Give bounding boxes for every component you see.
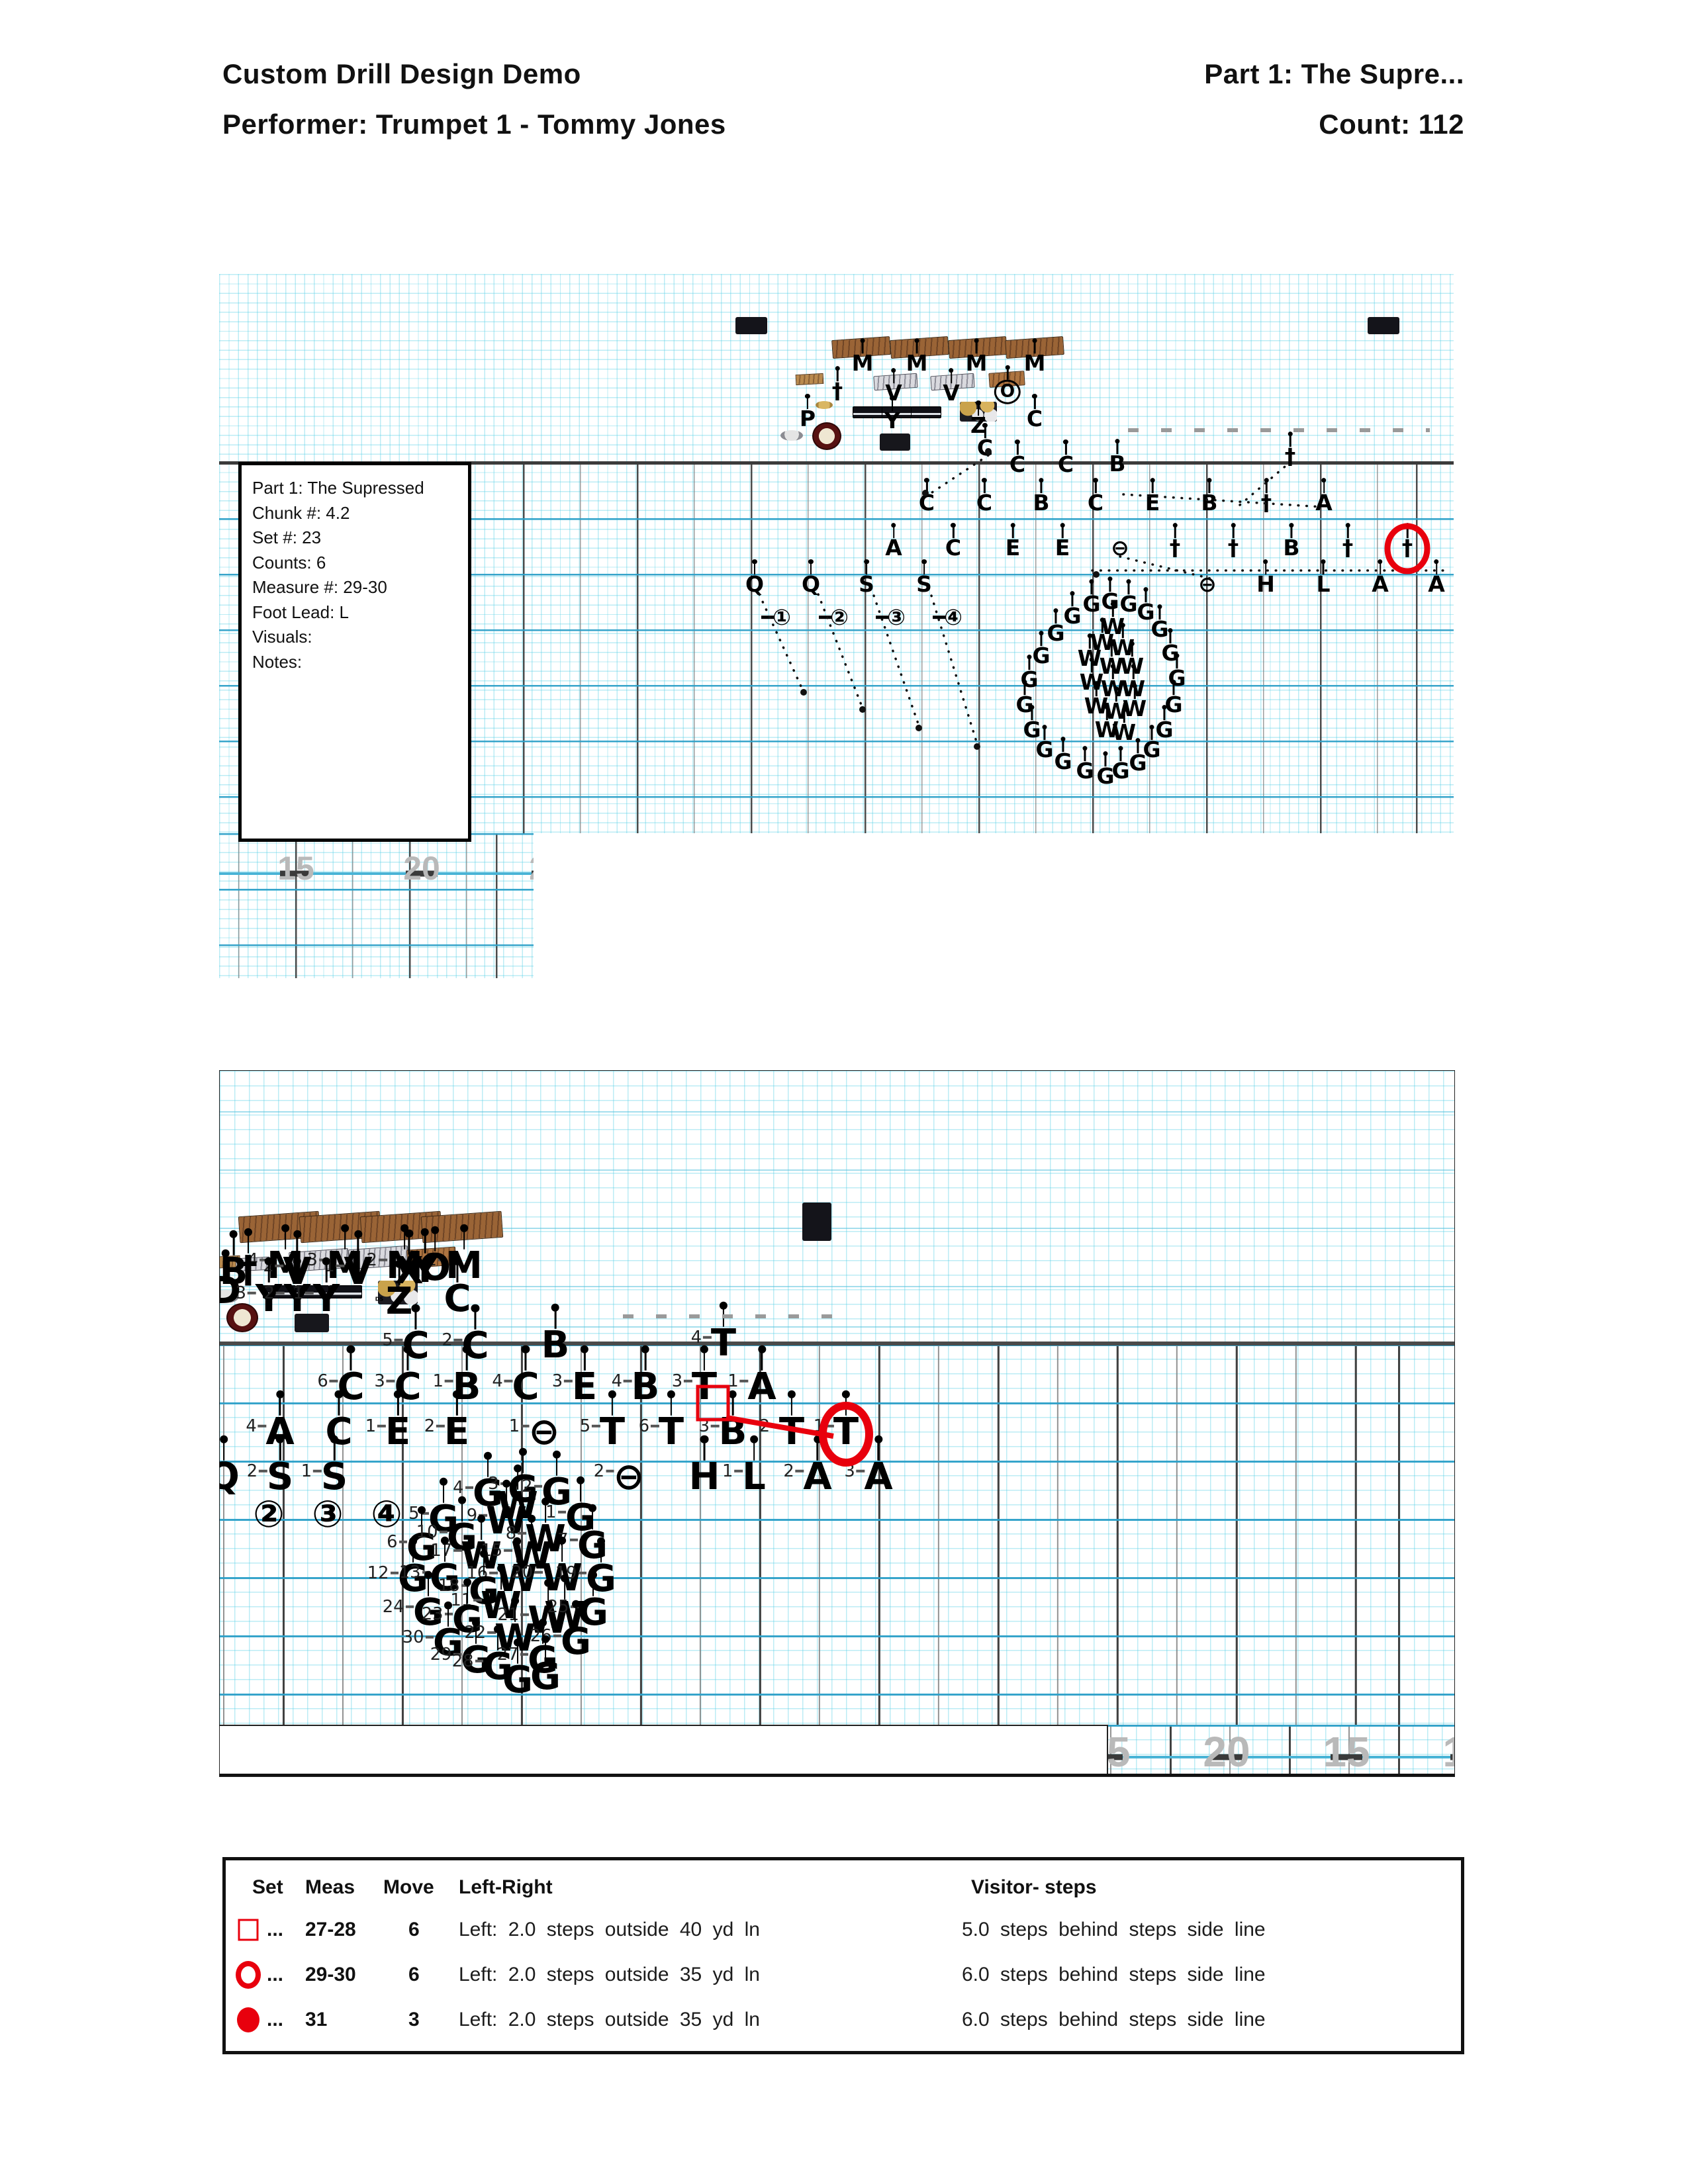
cymbal-icon (816, 401, 833, 409)
info-footlead: Foot Lead: L (252, 600, 468, 625)
performer-marker: 6T (659, 1414, 684, 1451)
performer-label: Performer: Trumpet 1 - Tommy Jones (222, 109, 726, 140)
performer-marker: A (1315, 492, 1333, 514)
performer-marker: G (1119, 593, 1137, 615)
front-back-coordinate: 5.0 steps behind steps side line (962, 1919, 1266, 1941)
performer-marker: G (1101, 590, 1119, 612)
marker-layer: 4M3M2M1MB†D2V1VXYO3Y2Y1YDSZC5C2CB4T6C3C1… (220, 1071, 1454, 1776)
performer-marker: C (976, 492, 992, 514)
info-chunk: Chunk #: 4.2 (252, 501, 468, 526)
performer-marker: V (885, 382, 902, 404)
performer-marker: M (852, 352, 874, 374)
performer-marker: 26G (561, 1623, 591, 1661)
performer-marker: G (1063, 605, 1081, 627)
performer-marker: H (1256, 573, 1275, 595)
col-header-lr: Left-Right (459, 1876, 553, 1899)
col-header-meas: Meas (305, 1876, 355, 1899)
col-header-visitor: Visitor- steps (971, 1876, 1097, 1899)
performer-marker: 3T (692, 1369, 717, 1406)
performer-marker: 4C (512, 1369, 539, 1406)
performer-marker: G (1082, 593, 1100, 615)
performer-marker: C (1009, 453, 1025, 475)
page-title: Custom Drill Design Demo (222, 58, 581, 90)
performer-marker: ③ (312, 1496, 343, 1533)
performer-marker: ④ (944, 606, 962, 628)
performer-marker: ① (773, 606, 791, 628)
front-back-coordinate: 6.0 steps behind steps side line (962, 2009, 1266, 2031)
performer-marker: † (1342, 537, 1354, 559)
performer-marker: ⊖ (1198, 573, 1217, 595)
performer-marker: C (1027, 408, 1043, 430)
front-back-coordinate: 6.0 steps behind steps side line (962, 1964, 1266, 1986)
performer-marker: B (1283, 537, 1299, 559)
timpani-icon (780, 430, 803, 441)
performer-marker: B (1109, 453, 1125, 475)
performer-marker: † (1261, 492, 1272, 514)
field-chart-zoom: 25201510 4M3M2M1MB†D2V1VXYO3Y2Y1YDSZC5C2… (219, 1070, 1455, 1777)
performer-marker: Z (386, 1283, 413, 1320)
performer-marker: P (800, 408, 816, 430)
performer-marker: Y (884, 410, 900, 432)
info-notes: Notes: (252, 650, 468, 675)
performer-marker: G (1150, 618, 1168, 640)
performer-marker: ② (830, 606, 849, 628)
performer-marker: C (1088, 492, 1103, 514)
performer-marker: G (1076, 760, 1094, 782)
performer-marker: C (919, 492, 935, 514)
performer-marker: G (1168, 667, 1186, 689)
performer-marker: 2A (803, 1459, 831, 1496)
info-set: Set #: 23 (252, 525, 468, 551)
info-counts: Counts: 6 (252, 551, 468, 576)
performer-marker: E (1145, 492, 1160, 514)
info-part: Part 1: The Supressed (252, 476, 468, 501)
performer-marker: L (1316, 573, 1330, 595)
performer-marker: 3E (572, 1369, 597, 1406)
performer-marker: † (1402, 537, 1413, 559)
performer-marker: Q (219, 1459, 240, 1496)
performer-marker: G (1035, 739, 1053, 760)
part-label: Part 1: The Supre... (1204, 58, 1464, 90)
performer-marker: B (1201, 492, 1217, 514)
left-right-coordinate: Left: 2.0 steps outside 35 yd ln (459, 2009, 760, 2031)
performer-marker: ④ (371, 1496, 402, 1533)
performer-marker: 1A (747, 1369, 776, 1406)
performer-marker: ② (253, 1496, 284, 1533)
keyboard-icon (853, 406, 883, 418)
performer-marker: ⊖ (1111, 537, 1129, 559)
performer-marker: W (1080, 671, 1103, 693)
performer-marker: A (1428, 573, 1445, 595)
performer-marker: Q (745, 573, 764, 595)
performer-marker: 1E (385, 1414, 410, 1451)
performer-marker: ③ (887, 606, 906, 628)
keyboard-icon (911, 406, 941, 418)
set-cell: ... (267, 1964, 283, 1986)
bassdrum-icon (812, 422, 841, 450)
performer-marker: C (977, 437, 993, 459)
drill-coordinate-table: Set Meas Move Left-Right Visitor- steps … (222, 1857, 1464, 2054)
performer-marker: A (885, 537, 902, 559)
performer-marker: M (966, 352, 988, 374)
performer-marker: Q (802, 573, 820, 595)
performer-marker: 2⊖ (614, 1459, 645, 1496)
performer-marker: G (1032, 645, 1050, 666)
set-info-box: Part 1: The Supressed Chunk #: 4.2 Set #… (238, 462, 471, 842)
performer-marker: 2T (779, 1414, 804, 1451)
performer-marker: 1S (321, 1459, 348, 1496)
performer-marker: S (916, 573, 932, 595)
performer-marker: 1V (344, 1253, 372, 1291)
measure-cell: 29-30 (305, 1964, 356, 1986)
performer-marker: S (859, 573, 874, 595)
performer-marker: A (1372, 573, 1389, 595)
performer-marker: 1L (742, 1459, 766, 1496)
measure-cell: 27-28 (305, 1919, 356, 1941)
info-visuals: Visuals: (252, 625, 468, 650)
xylo-icon (796, 373, 824, 385)
speaker-icon (735, 317, 767, 334)
performer-marker: C (945, 537, 961, 559)
performer-marker: G (1129, 752, 1147, 774)
performer-marker: † (1170, 537, 1181, 559)
col-header-set: Set (252, 1876, 283, 1899)
col-header-move: Move (383, 1876, 434, 1899)
move-counts-cell: 3 (408, 2009, 420, 2031)
performer-marker: 1Y (313, 1281, 340, 1318)
performer-marker: 1⊖ (529, 1414, 560, 1451)
performer-marker: † (1228, 537, 1239, 559)
performer-marker: 3B (719, 1414, 747, 1451)
performer-marker: H (689, 1459, 720, 1496)
performer-marker: 1T (833, 1414, 859, 1451)
performer-marker: G (502, 1662, 533, 1699)
performer-marker: C (325, 1414, 352, 1451)
left-right-coordinate: Left: 2.0 steps outside 35 yd ln (459, 1964, 760, 1986)
info-measure: Measure #: 29-30 (252, 575, 468, 600)
performer-marker: B (541, 1327, 570, 1364)
gong-icon (880, 433, 910, 451)
performer-marker: M (906, 352, 928, 374)
performer-marker: 5T (600, 1414, 625, 1451)
performer-marker: M (1024, 352, 1046, 374)
performer-marker: C (1058, 453, 1074, 475)
set-cell: ... (267, 1919, 283, 1941)
square-outline-icon (238, 1919, 259, 1941)
performer-marker: 4T (711, 1325, 736, 1362)
performer-marker: G (1047, 622, 1064, 644)
performer-marker: 3A (864, 1459, 892, 1496)
performer-marker: C (444, 1281, 471, 1318)
performer-marker: 6C (337, 1369, 364, 1406)
performer-marker: E (1006, 537, 1021, 559)
performer-marker: G (530, 1659, 561, 1696)
circle-filled-icon (237, 2007, 259, 2032)
circle-outline-icon (236, 1961, 261, 1989)
performer-marker: G (1111, 760, 1129, 782)
measure-cell: 31 (305, 2009, 327, 2031)
speaker-icon (802, 1203, 831, 1241)
performer-marker: G (1164, 694, 1182, 715)
speaker-icon (1368, 317, 1399, 334)
performer-marker: O (994, 379, 1021, 404)
performer-marker: G (1054, 751, 1072, 772)
performer-marker: B (1033, 492, 1049, 514)
performer-marker: W (1112, 721, 1136, 743)
performer-marker: V (943, 382, 960, 404)
performer-marker: E (1055, 537, 1070, 559)
performer-marker: 2E (444, 1414, 469, 1451)
performer-marker: DS (375, 1297, 383, 1302)
count-label: Count: 112 (1319, 109, 1464, 140)
move-counts-cell: 6 (408, 1964, 420, 1986)
set-cell: ... (267, 2009, 283, 2031)
left-right-coordinate: Left: 2.0 steps outside 40 yd ln (459, 1919, 760, 1941)
performer-marker: † (1285, 445, 1296, 467)
performer-marker: † (832, 380, 843, 402)
performer-marker: 4B (632, 1369, 660, 1406)
move-counts-cell: 6 (408, 1919, 420, 1941)
performer-marker: 2S (267, 1459, 293, 1496)
